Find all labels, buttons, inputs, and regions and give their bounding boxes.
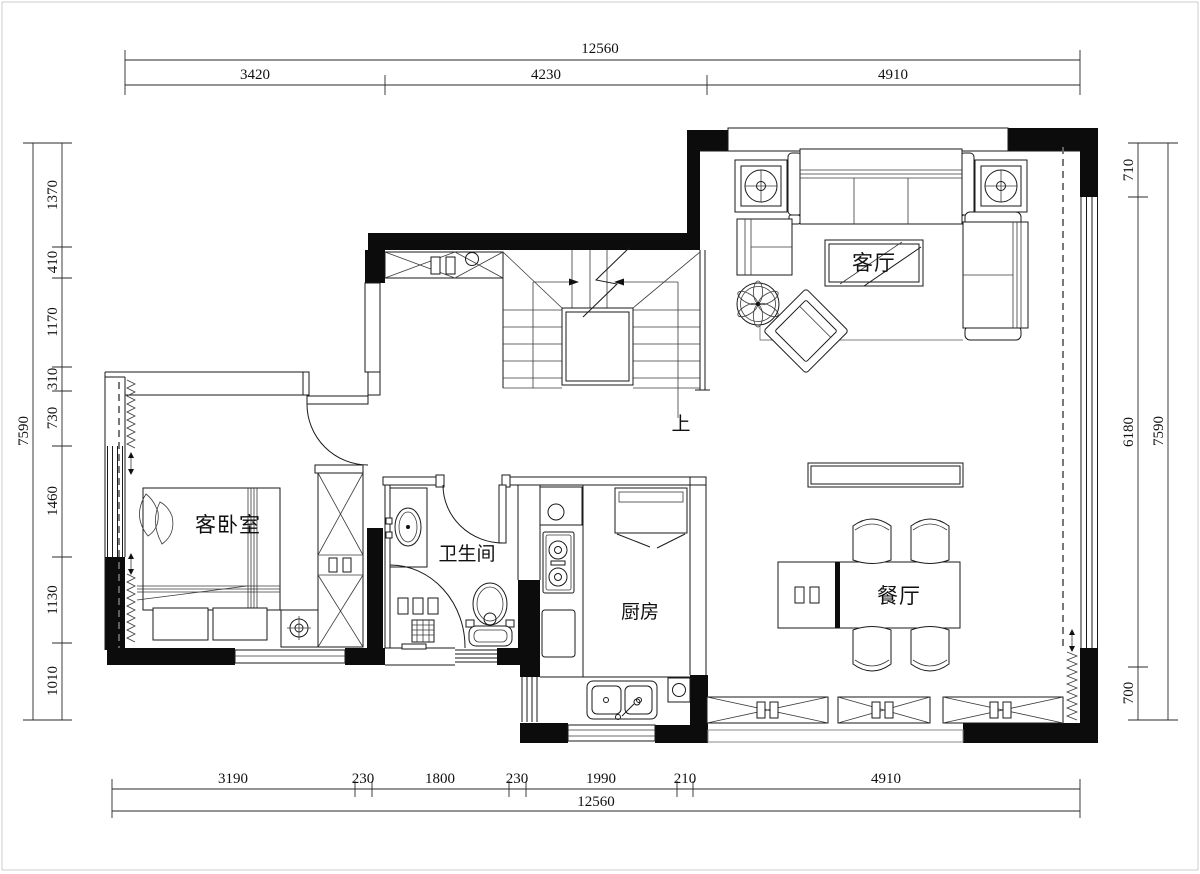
cabinet-handle	[431, 257, 440, 274]
coil-bedroom-top	[127, 380, 135, 448]
dim-right-seg-2: 700	[1121, 682, 1137, 705]
bathroom-door	[443, 485, 506, 543]
dim-bottom-total: 12560	[577, 794, 615, 810]
wardrobe	[315, 465, 363, 647]
wall-bedroom-left	[105, 557, 125, 650]
living-room-label: 客厅	[852, 251, 896, 275]
dim-right-seg-0: 710	[1121, 159, 1137, 182]
speaker-right	[975, 160, 1027, 212]
wall-pillar-stair-left	[365, 250, 385, 283]
dim-left-total: 7590	[16, 416, 32, 446]
dim-left-seg-6: 1130	[45, 585, 61, 614]
low-cabinet-3	[943, 697, 1063, 723]
wall-bed-bath-divider	[367, 528, 383, 648]
stairs-up-label: 上	[671, 413, 690, 435]
cutting-board	[542, 610, 575, 657]
window-living-top	[728, 128, 1008, 151]
wall-stub-left-of-hall	[365, 283, 380, 372]
sofa-three-seat	[788, 149, 974, 224]
dim-bottom-seg-4: 1990	[586, 771, 616, 787]
radiator-arrow-right	[1069, 629, 1075, 652]
stove	[543, 532, 574, 593]
bathroom: 卫生间	[386, 485, 514, 649]
low-cabinet-1	[707, 697, 828, 723]
dim-bottom-seg-6: 4910	[871, 771, 901, 787]
wall-kitchen-bottom-left	[520, 723, 568, 743]
window-arrow-bottom	[128, 553, 134, 575]
dim-bottom-seg-1: 230	[352, 771, 375, 787]
dim-left-seg-4: 730	[45, 407, 61, 430]
corner-cabinet	[540, 487, 582, 525]
dim-bottom-seg-3: 230	[506, 771, 529, 787]
low-cabinet-2	[838, 697, 930, 723]
dimension-right: 710 6180 700 7590	[1121, 143, 1178, 720]
console-table	[808, 463, 963, 487]
wall-living-top-left	[687, 130, 728, 151]
dim-bottom-seg-5: 210	[674, 771, 697, 787]
dim-bottom-seg-0: 3190	[218, 771, 248, 787]
dim-left-seg-2: 1170	[45, 307, 61, 336]
wall-kitchen-top	[510, 477, 706, 485]
wall-bedroom-bottom	[107, 648, 235, 665]
dim-left-seg-1: 410	[45, 251, 61, 274]
stair-void-inner	[566, 312, 629, 381]
dining-room-label: 餐厅	[877, 584, 921, 608]
window-bathroom-bottom	[385, 648, 497, 665]
armchair-left	[737, 219, 792, 275]
wall-bottom-right	[963, 723, 1098, 743]
window-bedroom-left	[108, 446, 123, 557]
armchair-diagonal	[764, 289, 849, 374]
dining-side-cabinet	[778, 562, 838, 628]
window-arrow-top	[128, 452, 134, 475]
wall-dining-bottom-band	[708, 730, 963, 742]
dim-right-seg-1: 6180	[1121, 417, 1137, 447]
stair-walk-line	[533, 279, 678, 419]
stairs: 上	[385, 247, 700, 435]
window-right-wall	[1081, 197, 1098, 648]
cabinet-handle	[446, 257, 455, 274]
bed	[137, 488, 280, 610]
guest-bedroom-label: 客卧室	[195, 513, 261, 537]
coffee-table: 客厅	[825, 240, 923, 286]
bathroom-label: 卫生间	[438, 543, 495, 565]
dim-left-seg-3: 310	[45, 368, 61, 391]
sofa-right	[963, 212, 1028, 340]
nightstand-lamp	[281, 610, 318, 647]
living-room: 客厅	[735, 149, 1028, 373]
dining-table: 餐厅	[835, 562, 960, 628]
soap-tray	[402, 644, 426, 649]
dimension-top: 12560 3420 4230 4910	[125, 41, 1080, 95]
kitchen: 厨房	[540, 485, 690, 720]
dim-top-seg-0: 3420	[240, 67, 270, 83]
washbasin	[386, 488, 427, 567]
wall-kitchen-left-top	[520, 648, 540, 677]
window-kitchen-left	[522, 677, 537, 722]
shower-bottles	[398, 598, 438, 614]
dim-left-seg-7: 1010	[45, 666, 61, 696]
kitchen-sink	[587, 681, 657, 720]
dim-top-total: 12560	[581, 41, 619, 57]
wall-top-middle	[368, 233, 700, 250]
toilet	[466, 583, 514, 646]
wall-kitchen-right-pillar	[690, 675, 708, 743]
kitchen-label: 厨房	[621, 601, 659, 623]
window-kitchen-bottom	[568, 725, 655, 741]
dim-top-seg-1: 4230	[531, 67, 561, 83]
fridge-unit	[615, 488, 687, 548]
speaker-left	[735, 160, 787, 212]
door-jamb-bedroom-left	[303, 372, 309, 395]
coil-bedroom-bottom	[127, 574, 135, 642]
dim-right-total: 7590	[1151, 416, 1167, 446]
floor-plan-svg: 12560 3420 4230 4910 3190 230 1800 230 1…	[0, 0, 1200, 874]
window-bedroom-bottom	[235, 650, 345, 663]
dim-top-seg-2: 4910	[878, 67, 908, 83]
wall-right-top	[1080, 128, 1098, 197]
dimension-bottom: 3190 230 1800 230 1990 210 4910 12560	[112, 771, 1080, 818]
floor-drain	[412, 620, 434, 642]
plant	[736, 281, 780, 327]
bedroom-door	[307, 396, 368, 465]
floor-plan-sheet: 12560 3420 4230 4910 3190 230 1800 230 1…	[0, 0, 1200, 874]
dimension-left: 1370 410 1170 310 730 1460 1130 1010 759…	[16, 143, 72, 720]
guest-bedroom: 客卧室	[137, 396, 368, 647]
wall-pillar-bed-bath	[345, 648, 385, 665]
dining-room: 餐厅	[707, 463, 1063, 723]
bed-bench-2	[213, 608, 267, 640]
radiator-coil-right	[1067, 652, 1077, 720]
kitchen-right-cabinet	[668, 678, 690, 702]
dim-bottom-seg-2: 1800	[425, 771, 455, 787]
stair-cabinet	[385, 252, 503, 278]
wall-bath-top-left	[383, 477, 436, 485]
dim-left-seg-5: 1460	[45, 486, 61, 516]
stair-void-outer	[562, 308, 633, 385]
door-jamb-bedroom-right	[368, 372, 380, 395]
dim-left-seg-0: 1370	[45, 180, 61, 210]
bed-bench-1	[153, 608, 208, 640]
